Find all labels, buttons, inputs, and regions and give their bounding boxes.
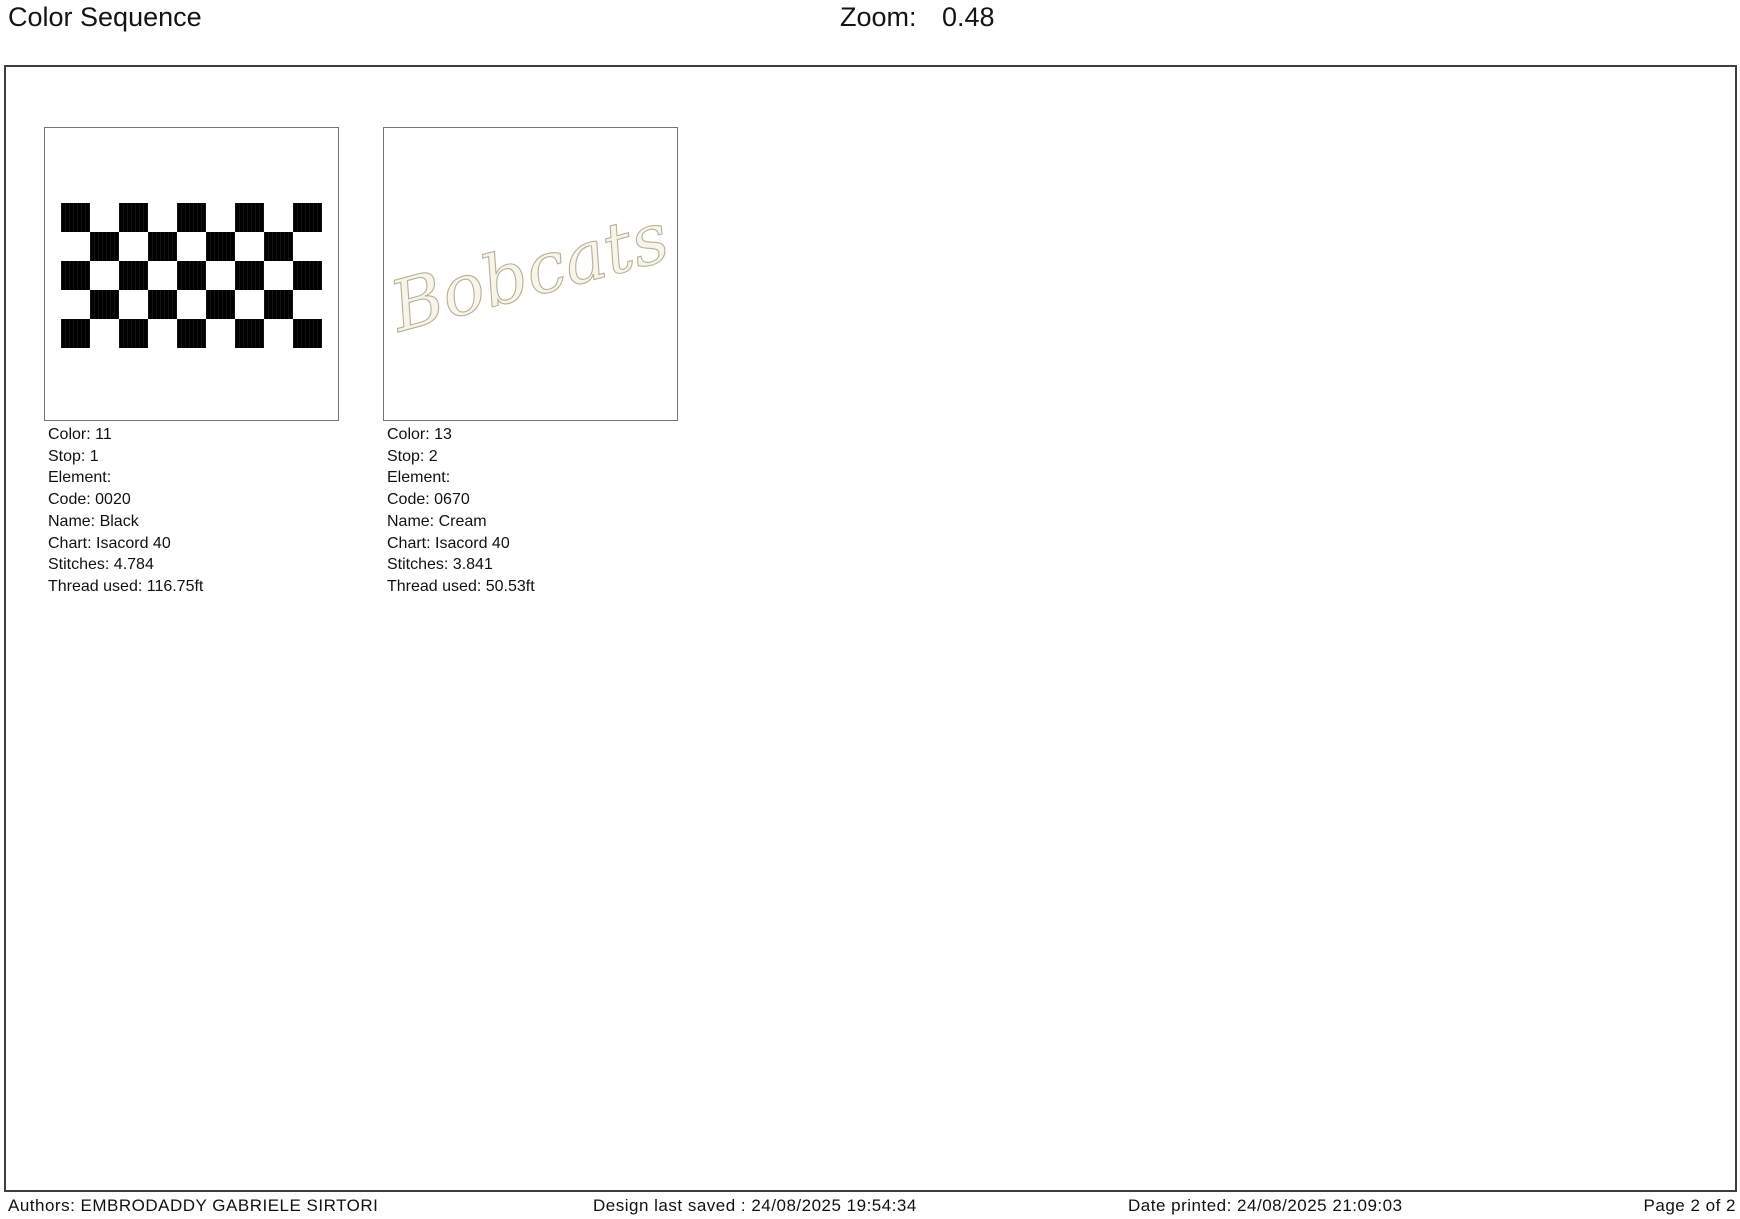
checker-cell [235,232,264,261]
info-line-name: Name: Black [48,511,368,533]
checker-cell [90,203,119,232]
checker-cell [61,232,90,261]
info-line-name: Name: Cream [387,511,707,533]
checker-cell [206,290,235,319]
checker-cell [264,319,293,348]
checker-cell [235,290,264,319]
checker-cell [177,319,206,348]
info-line-stitches: Stitches: 4.784 [48,554,368,576]
checker-cell [119,261,148,290]
checker-cell [148,261,177,290]
checker-cell [293,232,322,261]
checker-cell [148,232,177,261]
info-line-thread: Thread used: 50.53ft [387,576,707,598]
checker-cell [90,232,119,261]
checker-cell [119,319,148,348]
checker-cell [293,203,322,232]
checker-cell [264,232,293,261]
checker-cell [206,232,235,261]
checker-cell [177,290,206,319]
checker-cell [206,203,235,232]
checker-cell [119,203,148,232]
checker-cell [293,319,322,348]
info-line-element: Element: [387,467,707,489]
checker-cell [148,203,177,232]
checker-cell [206,261,235,290]
checker-cell [177,261,206,290]
color-info-block-2: Color: 13 Stop: 2 Element: Code: 0670 Na… [387,424,707,598]
info-line-color: Color: 11 [48,424,368,446]
info-line-color: Color: 13 [387,424,707,446]
checker-cell [119,232,148,261]
footer-page-number: Page 2 of 2 [1644,1196,1736,1216]
checker-cell [90,261,119,290]
checker-cell [90,319,119,348]
checker-cell [293,261,322,290]
checker-cell [61,290,90,319]
checker-cell [148,319,177,348]
checker-cell [177,203,206,232]
checkerboard-pattern [61,203,322,348]
zoom-label: Zoom: [840,1,917,33]
checker-cell [264,290,293,319]
info-line-stitches: Stitches: 3.841 [387,554,707,576]
checker-cell [177,232,206,261]
bobcats-script-text: Bobcats [384,196,677,349]
info-line-chart: Chart: Isacord 40 [387,533,707,555]
script-design-svg: Bobcats [384,128,677,420]
checker-cell [90,290,119,319]
info-line-thread: Thread used: 116.75ft [48,576,368,598]
info-line-code: Code: 0020 [48,489,368,511]
checker-cell [235,203,264,232]
info-line-element: Element: [48,467,368,489]
checker-cell [235,319,264,348]
checker-cell [206,319,235,348]
page-title: Color Sequence [8,1,202,33]
footer-design-saved: Design last saved : 24/08/2025 19:54:34 [593,1196,917,1216]
design-thumbnail-script: Bobcats [383,127,678,421]
info-line-code: Code: 0670 [387,489,707,511]
color-sequence-report-page: Color Sequence Zoom: 0.48 Bobcats Color:… [0,0,1740,1219]
footer-date-printed: Date printed: 24/08/2025 21:09:03 [1128,1196,1403,1216]
checker-cell [119,290,148,319]
checker-cell [148,290,177,319]
checker-cell [235,261,264,290]
info-line-stop: Stop: 2 [387,446,707,468]
checker-cell [61,261,90,290]
design-thumbnail-checkerboard [44,127,339,421]
checker-cell [293,290,322,319]
zoom-value: 0.48 [942,1,995,33]
checker-cell [264,203,293,232]
checker-cell [61,203,90,232]
checker-cell [264,261,293,290]
checker-cell [61,319,90,348]
color-info-block-1: Color: 11 Stop: 1 Element: Code: 0020 Na… [48,424,368,598]
info-line-chart: Chart: Isacord 40 [48,533,368,555]
footer-authors: Authors: EMBRODADDY GABRIELE SIRTORI [8,1196,378,1216]
info-line-stop: Stop: 1 [48,446,368,468]
